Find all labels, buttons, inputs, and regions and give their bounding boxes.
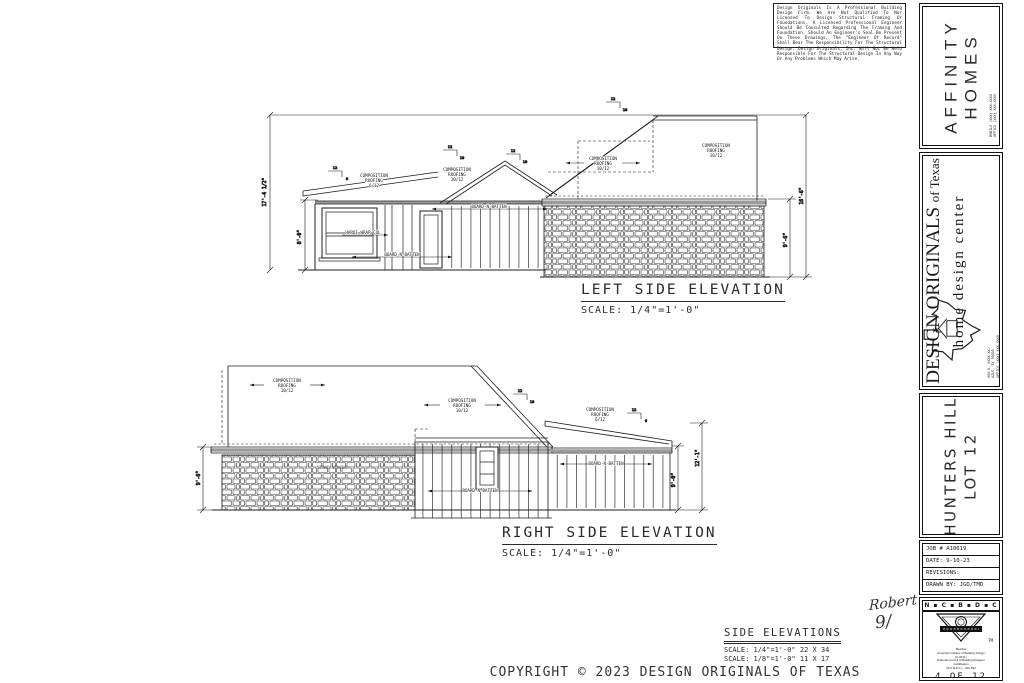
stone-veneer-wall <box>544 206 764 277</box>
board-batten-label: BOARD-N-BATTEN <box>384 252 420 257</box>
dim-right-plate: 9'-0" <box>671 473 677 488</box>
ncbdc-header: N ▪ C ▪ B ▪ D ▪ C <box>923 601 999 612</box>
dim-right-overall: 16'-6" <box>799 187 805 204</box>
left-side-elevation-drawing: 17'-4 1/2" 8'-0" 9'-6" 16'-6" COMPOSITIO… <box>262 96 812 280</box>
slope-run: 10 <box>530 399 535 404</box>
designer-address: XXX X. XXXX XX. AZLE, TX 76020 OFFICE (X… <box>987 335 1000 378</box>
slope-rise: 12 <box>333 165 338 170</box>
sheet-scale-1: SCALE: 1/4"=1'-0" 22 X 34 <box>724 646 841 655</box>
blueprint-sheet: Design Originals Is A Professional Build… <box>0 0 1024 683</box>
sheet-title-block: SIDE ELEVATIONS SCALE: 1/4"=1'-0" 22 X 3… <box>724 627 841 664</box>
sheet-scale-2: SCALE: 1/8"=1'-0" 11 X 17 <box>724 655 841 664</box>
project-panel: HUNTERS HILL LOT 12 <box>919 393 1003 538</box>
dim-right-overall: 12'-1" <box>695 449 701 466</box>
dim-left-overall: 17'-4 1/2" <box>262 177 268 206</box>
builder-name-line1: AFFINITY <box>941 18 961 134</box>
door <box>420 211 442 268</box>
slope-rise: 12 <box>448 144 453 149</box>
roof-pitch-label: 10/12 <box>456 408 469 413</box>
certification-panel: N ▪ C ▪ B ▪ D ▪ C TM Member American Ins… <box>919 597 1003 681</box>
builder-panel: AFFINITY HOMES MOBILE (XXX) XXX-XXXX OFF… <box>919 3 1003 149</box>
slope-rise: 12 <box>611 96 616 101</box>
roof-pitch-label: 10/12 <box>710 153 723 158</box>
job-revisions: REVISIONS: <box>923 568 999 580</box>
job-date: DATE: 9-10-23 <box>923 556 999 568</box>
window <box>476 447 498 489</box>
job-number: JOB # A10619 <box>923 544 999 556</box>
roof-pitch-label: 10/12 <box>281 388 294 393</box>
left-elevation-scale: SCALE: 1/4"=1'-0" <box>581 305 785 316</box>
slope-rise: 12 <box>632 407 637 412</box>
copyright-text: COPYRIGHT © 2023 DESIGN ORIGINALS OF TEX… <box>440 665 910 680</box>
roof-pitch-label: 10/12 <box>451 177 464 182</box>
sheet-number: 4 OF 12 <box>923 672 999 678</box>
project-name-line2: LOT 12 <box>961 396 981 535</box>
roof-pitch-label: 6/12 <box>595 417 606 422</box>
tm-mark: TM <box>988 638 993 643</box>
designer-name: DESIGN ORIGINALS <box>923 207 944 384</box>
board-n-batten-siding <box>446 206 544 268</box>
ncbdc-triangle-logo <box>933 613 989 643</box>
right-elevation-scale: SCALE: 1/4"=1'-0" <box>502 548 717 559</box>
builder-name-line2: HOMES <box>961 18 981 134</box>
designer-panel: DESIGN ORIGINALS of Texas home design ce… <box>919 152 1003 390</box>
elevations-drawing: 17'-4 1/2" 8'-0" 9'-6" 16'-6" COMPOSITIO… <box>0 0 1024 683</box>
designer-tagline: home design center <box>951 155 968 387</box>
project-name: HUNTERS HILL LOT 12 <box>942 396 981 535</box>
hardi-col-label: HARDI WRAP COL <box>345 230 381 235</box>
ncbdc-member-text: Member American Institute of Building De… <box>923 648 999 671</box>
left-elevation-title: LEFT SIDE ELEVATION <box>581 282 785 302</box>
right-elevation-title: RIGHT SIDE ELEVATION <box>502 525 717 545</box>
dim-left-plate: 9'-6" <box>196 471 202 486</box>
slope-rise: 12 <box>511 148 516 153</box>
job-drawn-by: DRAWN BY: JGD/TMD <box>923 580 999 592</box>
board-batten-label: BOARD-N-BATTEN <box>588 461 624 466</box>
stone-veneer-label: STONE VENEER <box>317 465 348 470</box>
hardi-column <box>385 205 412 270</box>
job-info-panel: JOB # A10619 DATE: 9-10-23 REVISIONS: DR… <box>919 540 1003 595</box>
builder-name: AFFINITY HOMES <box>941 18 980 134</box>
left-elevation-title-block: LEFT SIDE ELEVATION SCALE: 1/4"=1'-0" <box>581 282 785 316</box>
stone-veneer-wall <box>222 455 415 510</box>
slope-run: 10 <box>523 159 528 164</box>
handwritten-signature: Robert 9/ <box>868 592 921 634</box>
project-name-line1: HUNTERS HILL <box>942 396 962 535</box>
right-side-elevation-drawing: 9'-6" 9'-0" 12'-1" COMPOSITION ROOFING 1… <box>196 366 708 518</box>
sheet-title: SIDE ELEVATIONS <box>724 627 841 644</box>
builder-contact: MOBILE (XXX) XXX-XXXX OFFICE (XXX) XXX-X… <box>989 94 998 137</box>
slope-run: 10 <box>623 107 628 112</box>
slope-run: 6 <box>346 176 349 181</box>
ncbdc-seal: TM <box>923 613 999 647</box>
dim-right-plate: 9'-6" <box>783 233 789 248</box>
dim-left-plate: 8'-0" <box>297 230 303 245</box>
slope-rise: 12 <box>518 388 523 393</box>
left-elevation-linework <box>267 102 812 280</box>
board-batten-label: BOARD-N-BATTEN <box>462 488 498 493</box>
designer-suffix: of Texas <box>927 158 942 202</box>
right-elevation-title-block: RIGHT SIDE ELEVATION SCALE: 1/4"=1'-0" <box>502 525 717 559</box>
roof-pitch-label: 10/12 <box>597 166 610 171</box>
slope-run: 10 <box>460 155 465 160</box>
roof-pitch-label: 6/12 <box>369 183 380 188</box>
right-elevation-linework <box>197 366 708 518</box>
slope-run: 6 <box>645 418 648 423</box>
board-batten-label: BOARD-N-BATTEN <box>471 204 507 209</box>
